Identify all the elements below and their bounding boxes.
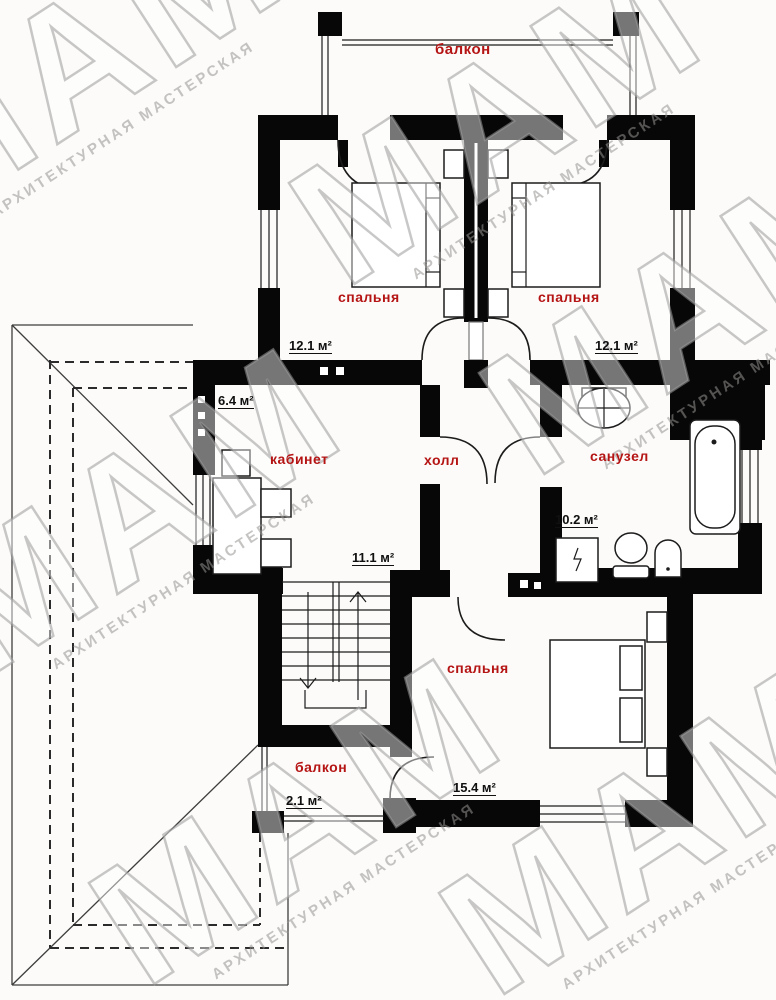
window-bedroom-left [261,210,277,288]
walls-upper-block [193,115,770,440]
balcony-top-structure [318,12,639,117]
roof-outline [12,325,288,985]
window-office [196,475,210,545]
label-office: кабинет [270,452,328,466]
label-hall: холл [424,453,459,467]
label-balcony-top: балкон [435,42,491,57]
toilet [613,533,649,578]
floor-plan: МАМ АРХИТЕКТУРНАЯ МАСТЕРСКАЯ МАМ АРХИТЕК… [0,0,776,1000]
label-bedroom-right: спальня [538,290,600,304]
bed-bottom [550,612,667,776]
window-bedroom-bottom [540,806,625,822]
watermark-small: АРХИТЕКТУРНАЯ МАСТЕРСКАЯ [209,800,479,983]
label-bedroom-bottom: спальня [447,661,509,675]
bidet [655,540,681,577]
desk-office [213,450,291,574]
label-balcony-bottom: балкон [295,760,347,774]
watermark-small: АРХИТЕКТУРНАЯ МАСТЕРСКАЯ [0,38,258,221]
area-bedroom-left: 12.1 м² [289,339,332,354]
window-bedroom-right [674,210,690,288]
area-hall: 11.1 м² [352,551,394,566]
sink [578,388,630,428]
floor-plan-svg: МАМ АРХИТЕКТУРНАЯ МАСТЕРСКАЯ МАМ АРХИТЕК… [0,0,776,1000]
window-bathroom [742,450,758,523]
area-bedroom-right: 12.1 м² [595,339,638,354]
watermark-small: АРХИТЕКТУРНАЯ МАСТЕРСКАЯ [559,810,776,993]
area-balcony-bottom: 2.1 м² [286,794,322,809]
washing-machine [556,538,598,582]
area-office: 6.4 м² [218,394,254,409]
bathtub [690,420,740,534]
label-bathroom: санузел [590,449,649,463]
staircase [282,582,390,708]
label-bedroom-left: спальня [338,290,400,304]
area-bathroom: 10.2 м² [555,513,598,528]
area-bedroom-bottom: 15.4 м² [453,781,496,796]
watermark: МАМ АРХИТЕКТУРНАЯ МАСТЕРСКАЯ МАМ АРХИТЕК… [0,0,776,1000]
